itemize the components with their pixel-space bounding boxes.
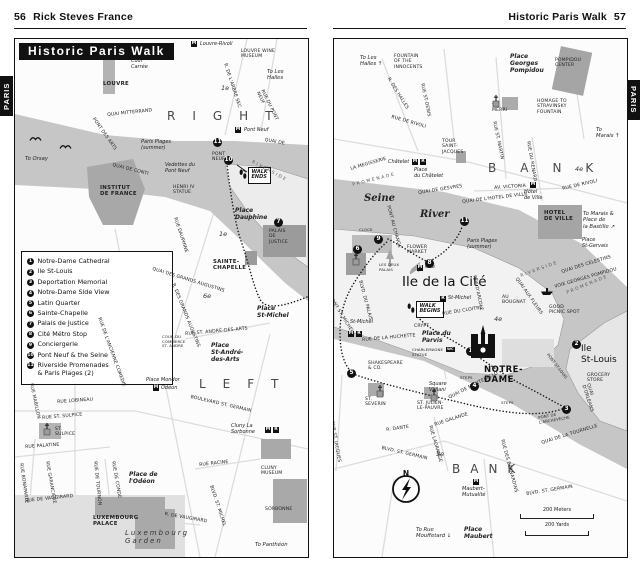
map-label: TOUR SAINT- JACQUES bbox=[442, 139, 463, 155]
map-label: RUE LOBINEAU bbox=[57, 397, 93, 405]
map-label: POMPIDOU CENTER bbox=[555, 58, 581, 69]
map-label: To Panthéon bbox=[255, 542, 288, 548]
right-page-tab-paris: PARIS bbox=[627, 80, 640, 120]
walk-stop-marker-3: 3 bbox=[562, 405, 571, 414]
map-label: ST. SULPICE bbox=[55, 427, 75, 438]
map-label: HENRI IV STATUE bbox=[173, 185, 195, 196]
map-label: STEPS bbox=[460, 376, 473, 381]
walk-stop-marker-9: 9 bbox=[374, 235, 383, 244]
map-label: GROCERY STORE bbox=[587, 373, 610, 384]
metro-icon: M bbox=[153, 385, 159, 391]
left-page-title: Rick Steves France bbox=[33, 11, 133, 23]
map-label: RUE ST. ANDRÉ-DES-ARTS bbox=[185, 327, 248, 338]
map-label: ST. SEVERIN bbox=[365, 397, 386, 408]
map-label: RUE DE L'ANCIENNE COMEDIE bbox=[96, 317, 126, 388]
map-label: BANK bbox=[488, 161, 617, 175]
walk-stop-marker-8: 8 bbox=[425, 259, 434, 268]
map-label: 1e bbox=[219, 231, 227, 239]
map-label: SORBONNE bbox=[265, 507, 292, 512]
metro-icon: M bbox=[235, 127, 241, 133]
walk-stop-marker-2: 2 bbox=[572, 340, 581, 349]
metro-icon: M bbox=[412, 159, 418, 165]
map-label: Luxembourg Garden bbox=[125, 529, 189, 546]
map-label: RUE DE RIVOLI bbox=[391, 115, 427, 130]
map-label: AV. VICTORIA bbox=[494, 184, 526, 192]
right-page-title: Historic Paris Walk bbox=[508, 11, 607, 23]
map-label: PROMENADE bbox=[352, 172, 396, 188]
walk-stop-marker-4: 4 bbox=[470, 382, 479, 391]
scale-meters-bar bbox=[520, 514, 594, 519]
map-label: CRYPT bbox=[414, 324, 429, 329]
map-label: RUE ST. MARTIN bbox=[491, 121, 504, 160]
map-label: QUAI DE bbox=[264, 138, 285, 147]
cathedral-icon bbox=[468, 325, 498, 361]
map-label: LOUVRE bbox=[103, 81, 129, 87]
map-label: Cour Carrée bbox=[131, 59, 148, 71]
map-label: Place Maubert bbox=[464, 526, 492, 540]
map-label: CHARLEMAGNE STATUE bbox=[412, 348, 443, 357]
map-label: PONT DES ARTS bbox=[91, 117, 118, 152]
map-label: Vedettes du Pont Neuf bbox=[165, 163, 195, 175]
map-label: R. DES HALLES bbox=[385, 77, 409, 111]
right-map: To Les Halles ↑FOUNTAIN OF THE INNOCENTS… bbox=[333, 38, 628, 558]
scale-yards-bar bbox=[525, 531, 589, 536]
map-label: RUE DE RIVOLI bbox=[562, 179, 598, 192]
map-label: Seine bbox=[364, 193, 395, 205]
map-label: LEFT bbox=[199, 377, 295, 391]
map-label: RUE GALANDE bbox=[434, 412, 469, 428]
metro-icon: M bbox=[530, 182, 536, 188]
church-icon bbox=[41, 423, 53, 436]
bird-icon bbox=[59, 143, 72, 150]
map-label: St-Michel bbox=[350, 320, 373, 326]
scale-meters-label: 200 Meters bbox=[543, 507, 571, 513]
walk-stop-marker-11: 11 bbox=[460, 217, 469, 226]
map-label: Maubert- Mutualité bbox=[462, 487, 486, 499]
map-label: HOTEL DE VILLE bbox=[544, 210, 573, 223]
map-label: FLOWER MARKET bbox=[407, 245, 427, 256]
walk-stop-marker-5: 5 bbox=[347, 369, 356, 378]
church-icon bbox=[490, 95, 502, 108]
left-page-tab-paris: PARIS bbox=[0, 76, 13, 116]
map-label: PALAIS DE JUSTICE bbox=[269, 229, 288, 245]
metro-icon: M bbox=[473, 479, 479, 485]
scale-bar: 200 Meters 200 Yards bbox=[520, 507, 594, 536]
rer-icon: R bbox=[420, 159, 426, 165]
map-label: Place Mondor bbox=[146, 378, 180, 384]
map-label: WC bbox=[446, 347, 455, 352]
map-label: Place Dauphine bbox=[235, 207, 267, 221]
map-label: RUE RACINE bbox=[199, 460, 229, 468]
map-label: Place St-Gervais bbox=[582, 238, 608, 250]
map-label: QUAI MITTERRAND bbox=[107, 108, 153, 118]
svg-text:N: N bbox=[403, 469, 409, 478]
map-label: To Les Halles ↑ bbox=[360, 55, 382, 68]
metro-icon: M bbox=[417, 265, 423, 271]
map-label: Châtelet bbox=[388, 160, 409, 166]
map-label: INSTITUT DE FRANCE bbox=[100, 185, 137, 198]
map-label: Ile St-Louis bbox=[581, 344, 617, 365]
footprints-icon bbox=[239, 169, 247, 180]
map-label: R. DE VAUGIRARD bbox=[164, 512, 208, 525]
church-icon bbox=[350, 253, 362, 266]
map-label: QUAI D'ORLEANS bbox=[580, 383, 602, 422]
map-label: ST. JULIEN- LE-PAUVRE bbox=[417, 401, 444, 412]
map-label: Place de l'Odéon bbox=[129, 471, 158, 485]
map-label: AU BOUGNAT bbox=[502, 295, 526, 306]
metro-icon: M bbox=[265, 427, 271, 433]
map-label: To Marais ↑ bbox=[596, 127, 620, 140]
map-label: Place St-Michel bbox=[257, 305, 289, 319]
map-label: RUE ST. SULPICE bbox=[42, 412, 83, 421]
map-label: RUE PALATINE bbox=[25, 443, 60, 451]
map-label: LA MEGISSERIE bbox=[350, 157, 387, 172]
map-label: RUE MABILLON bbox=[28, 383, 41, 420]
map-label: BLVD. ST. GERMAIN bbox=[381, 446, 428, 462]
map-label: St-Michel bbox=[448, 296, 471, 302]
map-label: LOUVRE WINE MUSEUM bbox=[241, 49, 275, 60]
map-label: PONT ST-LOUIS bbox=[545, 353, 568, 380]
map-label: STEPS bbox=[501, 401, 514, 406]
map-label: To Rue Mouffetard ↓ bbox=[416, 527, 451, 540]
map-label: RUE DE CONDE bbox=[110, 461, 122, 499]
map-label: RUE DE LA HUCHETTE bbox=[362, 333, 416, 343]
map-label: 4e bbox=[575, 166, 583, 174]
right-page-number: 57 bbox=[614, 11, 626, 23]
right-page-header: Historic Paris Walk57 bbox=[508, 11, 626, 23]
map-label: LES DEUX PALAIS bbox=[379, 263, 399, 272]
map-label: COUR DU COMMERCE ST. ANDRE bbox=[162, 335, 185, 349]
map-label: SHAKESPEARE & CO. bbox=[368, 361, 403, 372]
walk-stop-marker-7: 7 bbox=[274, 218, 283, 227]
map-label: River bbox=[420, 209, 450, 221]
left-page-header: 56Rick Steves France bbox=[14, 11, 133, 23]
map-label: QUAI DE GESVRES bbox=[418, 184, 463, 196]
map-label: RUE DE VAUGIRARD bbox=[25, 494, 74, 504]
map-label: 5e bbox=[436, 451, 444, 459]
rer-icon: R bbox=[356, 331, 362, 337]
left-page-number: 56 bbox=[14, 11, 26, 23]
church-icon bbox=[374, 385, 386, 398]
map-label: RUE BONAPARTE bbox=[18, 463, 29, 504]
map-label: SAINTE- CHAPELLE bbox=[213, 259, 246, 272]
map-label: Cluny La Sorbonne bbox=[231, 424, 255, 436]
map-label: QUAI DE LA TOURNELLE bbox=[541, 424, 598, 446]
walk-stop-marker-10: 10 bbox=[224, 156, 233, 165]
map-label: WALK BEGINS bbox=[416, 301, 444, 318]
boat-icon bbox=[540, 288, 554, 296]
walk-stop-marker-11: 11 bbox=[213, 138, 222, 147]
map-label: CLUNY MUSEUM bbox=[261, 466, 282, 477]
map-label: FOUNTAIN OF THE INNOCENTS bbox=[394, 54, 422, 70]
scale-yards-label: 200 Yards bbox=[526, 522, 588, 528]
right-map-labels: To Les Halles ↑FOUNTAIN OF THE INNOCENTS… bbox=[334, 39, 627, 557]
map-label: BANK bbox=[452, 462, 525, 476]
map-label: Paris Plages (summer) bbox=[467, 239, 497, 251]
map-label: Odéon bbox=[161, 386, 177, 392]
compass-icon: N bbox=[390, 469, 422, 505]
church-icon bbox=[428, 389, 440, 402]
map-label: Place du Châtelet bbox=[414, 168, 443, 180]
map-label: RUE ST. JACQUES bbox=[333, 421, 341, 463]
map-label: Hôtel de Ville bbox=[524, 190, 543, 202]
map-label: PONT ST. MICHEL bbox=[333, 296, 354, 334]
book-spread: PARIS PARIS 56Rick Steves France Histori… bbox=[0, 0, 640, 568]
map-label: To Les Halles bbox=[267, 69, 283, 82]
map-label: RUE DAUPHINE bbox=[172, 217, 188, 253]
map-label: 6e bbox=[203, 293, 211, 301]
map-label: CLOCK bbox=[359, 228, 373, 233]
map-label: HOMAGE TO STRAVINSKY FOUNTAIN bbox=[537, 99, 567, 115]
map-label: BOULEVARD ST. GERMAIN bbox=[190, 395, 252, 414]
right-header-rule bbox=[333, 28, 626, 29]
map-label: Place du Parvis bbox=[422, 330, 451, 344]
map-label: R. DANTE bbox=[386, 425, 409, 434]
map-label: To Marais & Place de la Bastille ↗ bbox=[583, 211, 615, 230]
rer-icon: R bbox=[273, 427, 279, 433]
map-label: Place St-André- des-Arts bbox=[211, 342, 243, 363]
metro-icon: M bbox=[191, 41, 197, 47]
map-label: Paris Plages (summer) bbox=[141, 140, 171, 152]
footprints-icon bbox=[407, 303, 415, 314]
map-label: LUXEMBOURG PALACE bbox=[93, 515, 138, 528]
left-header-rule bbox=[14, 28, 307, 29]
bird-icon bbox=[29, 135, 42, 142]
map-label: QUAI DE CONTI bbox=[112, 163, 149, 177]
map-label: BLVD. DU PALAIS bbox=[357, 280, 373, 321]
map-label: BLVD. ST. MICHEL bbox=[208, 485, 226, 527]
map-label: GOOD PICNIC SPOT bbox=[549, 305, 580, 316]
map-label: Pont Neuf bbox=[244, 128, 269, 134]
map-label: RIVERSIDE bbox=[520, 260, 559, 278]
left-map-labels: MLouvre-RivoliLOUVRE WINE MUSEUMCour Car… bbox=[15, 39, 308, 557]
map-label: PONT AU CHANGE bbox=[385, 205, 402, 249]
left-map: Historic Paris Walk 1Notre-Dame Cathedra… bbox=[14, 38, 309, 558]
map-label: RUE DE TOURNON bbox=[92, 461, 102, 506]
map-label: Place Georges Pompidou bbox=[510, 53, 544, 74]
map-label: 4e bbox=[494, 316, 502, 324]
map-label: Louvre-Rivoli bbox=[200, 42, 233, 48]
map-label: BLVD. ST. GERMAIN bbox=[526, 485, 573, 498]
map-label: To Orsay bbox=[25, 156, 48, 162]
map-label: RUE ST-DENIS bbox=[419, 83, 431, 117]
map-label: QUAI DE L'HOTEL DE VILLE bbox=[462, 192, 528, 205]
